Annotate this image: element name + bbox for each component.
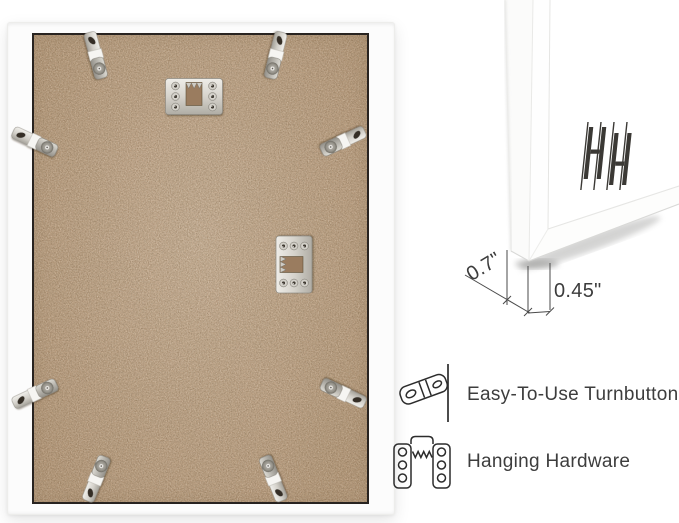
product-image: 0.7" 0.45" Easy-To-Use Turnbuttons xyxy=(0,0,679,523)
callout-label-hanging-hardware: Hanging Hardware xyxy=(467,451,630,473)
sawtooth-hanger-icon xyxy=(276,236,313,294)
frame-back-view xyxy=(7,22,395,515)
sawtooth-hanger-icon xyxy=(390,432,454,492)
frame-corner-view: 0.7" 0.45" xyxy=(430,0,679,340)
turnbutton-icon xyxy=(390,358,456,428)
callout-label-turnbuttons: Easy-To-Use Turnbuttons xyxy=(467,384,679,406)
dimension-label-depth: 0.7" xyxy=(463,248,505,285)
dimension-label-face: 0.45" xyxy=(554,280,602,302)
sawtooth-hanger-icon xyxy=(165,78,223,115)
corner-shadow xyxy=(515,259,559,269)
